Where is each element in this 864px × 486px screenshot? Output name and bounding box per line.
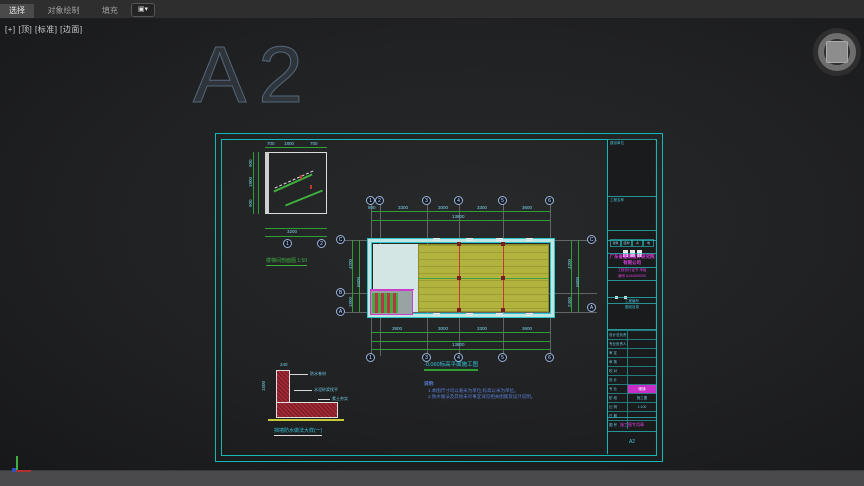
column-marker (457, 276, 461, 280)
titleblock-project-cell: 工程名称 (608, 196, 656, 230)
dim-text: 700 (310, 142, 318, 147)
notes-title: 说明: (424, 381, 435, 387)
stair-detail-caption: 楼梯间剖面图 1:50 (266, 257, 307, 266)
bottom-status-bar (0, 470, 864, 486)
dim-text: 900 (249, 159, 254, 167)
dim-text: 3300 (477, 327, 487, 332)
titleblock-rows: 设计总负责专业负责人审 定审 核校 对设 计专 业暖通阶 段施工图比 例1:10… (608, 329, 656, 417)
grid-bubble: 2 (317, 239, 326, 248)
titleblock-row: 阶 段施工图 (608, 393, 656, 402)
world-axis-z-icon (12, 468, 16, 472)
leader-line (294, 390, 312, 391)
company-name-cell: 广东省建筑设计研究院 有限公司 (608, 253, 656, 267)
dim-line (258, 152, 259, 214)
seal-cell (608, 280, 656, 297)
detail-base-line (268, 419, 344, 421)
dim-text: 4200 (568, 259, 573, 269)
dim-text: 1800 (284, 142, 294, 147)
viewcube-top-face-icon[interactable] (826, 41, 848, 63)
dim-text: 3300 (398, 206, 408, 211)
window-mark (466, 238, 473, 241)
titleblock-row: 设计总负责 (608, 330, 656, 339)
dim-text: 240 (280, 363, 288, 368)
dim-text: 6600 (357, 277, 362, 287)
window-mark (496, 313, 503, 316)
dim-text: 4200 (349, 259, 354, 269)
window-mark (496, 238, 503, 241)
window-mark (526, 238, 533, 241)
column-marker (501, 308, 505, 312)
dim-text: 1800 (249, 177, 254, 187)
dim-line (371, 349, 550, 350)
dim-text: 13800 (452, 343, 465, 348)
grid-bubble: 5 (498, 353, 507, 362)
dim-text: 3600 (522, 206, 532, 211)
dim-text: 3200 (287, 230, 297, 235)
viewport-canvas[interactable]: [+] [顶] [标准] [边面] A2 700 1800 700 900 18… (0, 19, 864, 470)
plan-stair-steps (372, 293, 398, 313)
stair-red-mark (300, 175, 302, 179)
dim-text: 2400 (568, 297, 573, 307)
corner-detail-caption: 挡墙防水做法大样(一) (274, 427, 322, 436)
titleblock-label: 建设单位 (608, 140, 656, 147)
dim-text: 1800 (349, 297, 354, 307)
grid-bubble: A (336, 307, 345, 316)
dim-text: 3300 (477, 206, 487, 211)
titleblock-label: 图纸目录 (608, 304, 656, 311)
grid-bubble: 3 (422, 196, 431, 205)
sheet-size-cell: A2 (608, 431, 656, 453)
dim-line (265, 236, 327, 237)
stair-detail-outline (265, 152, 327, 214)
titleblock-label: 工程名称 (608, 197, 656, 204)
tab-object-draw[interactable]: 对象绘制 (38, 4, 88, 18)
company-cert-cell: 工程设计证书 甲级 编号 A144000000 (608, 267, 656, 280)
window-mark (526, 313, 533, 316)
drawing-list-cell: 图纸目录 (608, 303, 656, 329)
grid-bubble: C (587, 235, 596, 244)
dim-text: 13800 (452, 215, 465, 220)
titleblock-row: 专业负责人 (608, 339, 656, 348)
leader-line (318, 399, 330, 400)
dim-text: 1500 (262, 381, 267, 391)
sheet-size-text: A2 (608, 432, 656, 446)
dim-text: 3000 (438, 206, 448, 211)
dim-line (371, 332, 550, 333)
titleblock-row: 校 对 (608, 366, 656, 375)
column-marker (501, 276, 505, 280)
company-cert: 工程设计证书 甲级 编号 A144000000 (608, 268, 656, 279)
grid-bubble: A (587, 303, 596, 312)
titleblock-client-cell: 建设单位 (608, 139, 656, 196)
grid-bubble: 4 (454, 196, 463, 205)
stamp-strip: 施工图专用章 (608, 417, 656, 431)
viewport-label[interactable]: [+] [顶] [标准] [边面] (5, 24, 83, 35)
company-logo (608, 240, 656, 253)
grid-bubble: 1 (283, 239, 292, 248)
titleblock-row: 审 定 (608, 348, 656, 357)
ribbon-toolbar: 选择 对象绘制 填充 (0, 0, 864, 19)
grid-bubble: 1 (366, 196, 375, 205)
detail-label: 防水卷材 (310, 371, 326, 377)
plan-caption: -0.060标高平面施工图 (424, 360, 478, 371)
titleblock-row: 审 核 (608, 357, 656, 366)
window-mark (466, 313, 473, 316)
window-mark (433, 313, 440, 316)
titleblock-sign-row: 建筑结构水电 (608, 230, 656, 240)
titleblock-row: 专 业暖通 (608, 384, 656, 393)
titleblock-row: 设 计 (608, 375, 656, 384)
dim-text: 3600 (522, 327, 532, 332)
titleblock-row: 比 例1:100 (608, 402, 656, 411)
notes-line: 2.防水做法及其他未尽事宜详见相关图集及设计说明。 (428, 394, 535, 400)
grid-bubble: 5 (498, 196, 507, 205)
leader-line (290, 374, 308, 375)
stamp-text: 施工图专用章 (620, 422, 644, 427)
column-marker (457, 242, 461, 246)
stair-detail-wall (265, 152, 269, 214)
grid-bubble: 2 (375, 196, 384, 205)
world-axis-x-icon (16, 470, 31, 472)
toolbar-dropdown-icon[interactable]: ▣▾ (131, 3, 155, 17)
stair-red-mark (310, 185, 312, 189)
company-name: 广东省建筑设计研究院 有限公司 (608, 254, 656, 266)
window-mark (433, 238, 440, 241)
grid-bubble: 6 (545, 196, 554, 205)
dim-text: 6600 (576, 277, 581, 287)
detail-slab-horizontal (276, 402, 338, 418)
dim-text: 900 (249, 199, 254, 207)
detail-label: 水泥砂浆找平 (314, 387, 338, 393)
sheet-size-big-text: A2 (193, 29, 315, 121)
grid-bubble: 6 (545, 353, 554, 362)
dim-text: 3900 (392, 327, 402, 332)
grid-bubble: B (336, 288, 345, 297)
column-marker (501, 242, 505, 246)
dim-line (371, 220, 550, 221)
grid-bubble: C (336, 235, 345, 244)
tab-fill[interactable]: 填充 (93, 4, 127, 18)
dim-text: 700 (267, 142, 275, 147)
grid-bubble: 1 (366, 353, 375, 362)
dim-text: 600 (368, 206, 376, 211)
cad-app-window: 选择 对象绘制 填充 ▣▾ [+] [顶] [标准] [边面] A2 700 1… (0, 0, 864, 486)
dim-text: 3000 (438, 327, 448, 332)
dim-line (371, 211, 550, 212)
tab-select[interactable]: 选择 (0, 4, 34, 18)
titleblock: 建设单位 工程名称 建筑结构水电 广东省建筑设计研究院 有限公司 工程设计证书 … (607, 139, 655, 454)
dim-line (265, 147, 327, 148)
plan-mid-line (418, 278, 549, 279)
detail-label: 素土夯实 (332, 396, 348, 402)
column-marker (457, 308, 461, 312)
